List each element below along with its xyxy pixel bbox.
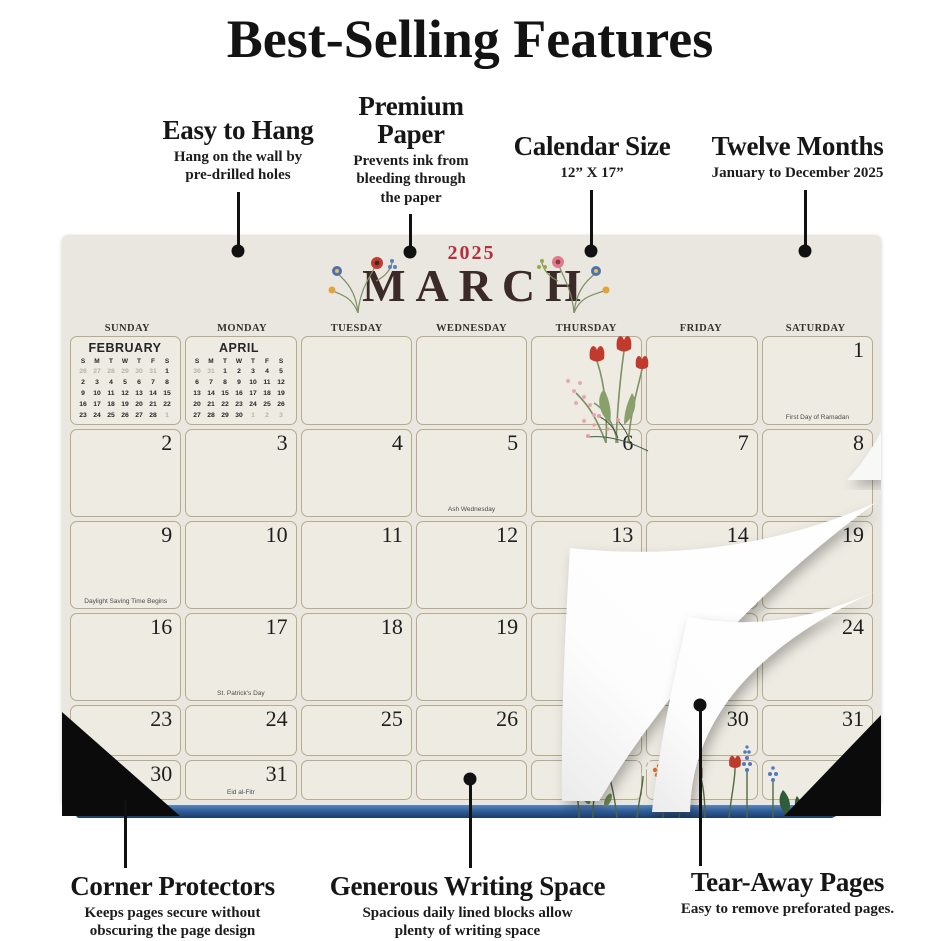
day-number: 13 [611, 522, 633, 548]
mini-day: 27 [90, 366, 104, 377]
day-cell-r2c7: 8 [762, 429, 873, 517]
mini-week-row: 13141516171819 [190, 388, 288, 399]
mini-week-row: 6789101112 [190, 377, 288, 388]
day-number: 9 [161, 522, 172, 548]
mini-day: 1 [160, 366, 174, 377]
day-number: 17 [266, 614, 288, 640]
day-number: 25 [381, 706, 403, 732]
callout-subtext: January to December 2025 [680, 164, 915, 182]
mini-day: 13 [190, 388, 204, 399]
mini-dow-letter: T [132, 357, 146, 366]
mini-day: 16 [76, 399, 90, 410]
mini-day: 10 [246, 377, 260, 388]
day-header-tuesday: TUESDAY [299, 323, 414, 334]
day-cell-r2c2: 3 [185, 429, 296, 517]
mini-day: 28 [204, 410, 218, 421]
day-cell-r2c3: 4 [301, 429, 412, 517]
mini-calendar-title: FEBRUARY [76, 341, 174, 355]
holiday-label: Spring Begins [534, 690, 639, 697]
mini-day: 15 [218, 388, 232, 399]
calendar-month: MARCH [62, 259, 881, 312]
mini-day: 19 [118, 399, 132, 410]
day-number: 1 [853, 337, 864, 363]
day-cell-r6c6 [646, 760, 757, 800]
callout-heading: Tear-Away Pages [640, 868, 935, 896]
mini-week-row: 303112345 [190, 366, 288, 377]
day-cell-r2c4: 5Ash Wednesday [416, 429, 527, 517]
leader-line-easy-to-hang [237, 192, 240, 248]
mini-days: 2627282930311234567891011121314151617181… [76, 366, 174, 421]
day-header-friday: FRIDAY [644, 323, 759, 334]
callout-heading: Generous Writing Space [295, 872, 640, 900]
mini-day: 25 [260, 399, 274, 410]
holiday-label: St. Patrick's Day [188, 690, 293, 697]
mini-day: 17 [90, 399, 104, 410]
mini-dow-letter: T [246, 357, 260, 366]
day-cell-r3c1: 9Daylight Saving Time Begins [70, 521, 181, 609]
mini-day: 8 [160, 377, 174, 388]
leader-line-calendar-size [590, 190, 593, 248]
mini-day: 19 [274, 388, 288, 399]
day-cell-r4c2: 17St. Patrick's Day [185, 613, 296, 701]
mini-day: 1 [246, 410, 260, 421]
day-header-saturday: SATURDAY [758, 323, 873, 334]
mini-day: 1 [160, 410, 174, 421]
day-cell-r2c5: 6 [531, 429, 642, 517]
day-number: 4 [392, 430, 403, 456]
mini-day: 5 [118, 377, 132, 388]
mini-day: 8 [218, 377, 232, 388]
mini-dow-letter: S [160, 357, 174, 366]
day-number: 23 [150, 706, 172, 732]
mini-day: 14 [204, 388, 218, 399]
callout-premium-paper: Premium Paper Prevents ink from bleeding… [330, 92, 492, 207]
day-number: 11 [382, 522, 403, 548]
mini-day: 24 [90, 410, 104, 421]
day-header-sunday: SUNDAY [70, 323, 185, 334]
mini-week-row: 2324252627281 [76, 410, 174, 421]
holiday-label: Eid al-Fitr [188, 789, 293, 796]
day-cell-r2c6: 7 [646, 429, 757, 517]
mini-day: 10 [90, 388, 104, 399]
mini-day: 3 [274, 410, 288, 421]
day-number: 31 [266, 761, 288, 787]
feature-graphic: Best-Selling Features Easy to Hang Hang … [0, 0, 940, 940]
mini-day: 3 [90, 377, 104, 388]
callout-calendar-size: Calendar Size 12” X 17” [480, 132, 704, 182]
mini-day: 16 [232, 388, 246, 399]
day-number: 26 [496, 706, 518, 732]
mini-day: 4 [104, 377, 118, 388]
day-cell-r4c4: 19 [416, 613, 527, 701]
holiday-label: Daylight Saving Time Begins [73, 598, 178, 605]
mini-dow-letter: T [104, 357, 118, 366]
leader-dot-easy-to-hang [232, 245, 245, 258]
mini-week-row: 27282930123 [190, 410, 288, 421]
mini-day: 7 [146, 377, 160, 388]
mini-days: 3031123456789101112131415161718192021222… [190, 366, 288, 421]
mini-dow-row: SMTWTFS [76, 357, 174, 366]
mini-day: 6 [132, 377, 146, 388]
day-cell-r6c3 [301, 760, 412, 800]
mini-day: 29 [118, 366, 132, 377]
leader-line-tear-away-pages [699, 704, 702, 866]
day-cell-r3c5: 13 [531, 521, 642, 609]
callout-subtext: Prevents ink from bleeding through the p… [330, 152, 492, 207]
mini-dow-letter: S [274, 357, 288, 366]
day-number: 12 [496, 522, 518, 548]
callout-easy-to-hang: Easy to Hang Hang on the wall by pre-dri… [118, 116, 358, 185]
callout-corner-protectors: Corner Protectors Keeps pages secure wit… [30, 872, 315, 941]
page-title: Best-Selling Features [0, 8, 940, 70]
callout-generous-writing-space: Generous Writing Space Spacious daily li… [295, 872, 640, 941]
leader-line-twelve-months [804, 190, 807, 248]
mini-day: 22 [160, 399, 174, 410]
day-number: 24 [266, 706, 288, 732]
mini-week-row: 2627282930311 [76, 366, 174, 377]
day-cell-r4c7: 24 [762, 613, 873, 701]
callout-heading: Calendar Size [480, 132, 704, 160]
mini-day: 6 [190, 377, 204, 388]
day-cell-r5c4: 26 [416, 705, 527, 756]
mini-dow-letter: W [118, 357, 132, 366]
mini-day: 13 [132, 388, 146, 399]
mini-dow-letter: M [204, 357, 218, 366]
mini-day: 18 [260, 388, 274, 399]
mini-day: 9 [76, 388, 90, 399]
mini-day: 5 [274, 366, 288, 377]
mini-day: 4 [260, 366, 274, 377]
mini-day: 23 [76, 410, 90, 421]
mini-day: 26 [274, 399, 288, 410]
day-number: 8 [853, 430, 864, 456]
day-number: 5 [507, 430, 518, 456]
callout-subtext: Easy to remove preforated pages. [640, 900, 935, 918]
callout-tear-away-pages: Tear-Away Pages Easy to remove preforate… [640, 868, 935, 918]
mini-dow-letter: F [146, 357, 160, 366]
day-cell-r1c3 [301, 336, 412, 425]
day-cell-r3c3: 11 [301, 521, 412, 609]
day-cell-r2c1: 2 [70, 429, 181, 517]
leader-dot-premium-paper [404, 246, 417, 259]
mini-day: 28 [104, 366, 118, 377]
mini-day: 30 [190, 366, 204, 377]
mini-day: 30 [132, 366, 146, 377]
calendar-pad: 2025 MARCH SUNDAYMONDAYTUESDAYWEDNESDAYT… [62, 235, 881, 818]
holiday-label: Ash Wednesday [419, 506, 524, 513]
day-cell-r1c6 [646, 336, 757, 425]
mini-day: 2 [260, 410, 274, 421]
day-number: 18 [381, 614, 403, 640]
day-cell-r4c6 [646, 613, 757, 701]
callout-heading: Easy to Hang [118, 116, 358, 144]
mini-day: 29 [218, 410, 232, 421]
leader-dot-tear-away-pages [694, 699, 707, 712]
mini-day: 17 [246, 388, 260, 399]
day-header-monday: MONDAY [185, 323, 300, 334]
pad-backing-edge [76, 805, 876, 818]
mini-day: 14 [146, 388, 160, 399]
mini-week-row: 2345678 [76, 377, 174, 388]
callout-subtext: Spacious daily lined blocks allow plenty… [295, 904, 640, 941]
mini-day: 1 [218, 366, 232, 377]
mini-day: 30 [232, 410, 246, 421]
mini-week-row: 9101112131415 [76, 388, 174, 399]
day-number: 14 [727, 522, 749, 548]
day-cell-r3c6: 14 [646, 521, 757, 609]
day-cell-r5c5 [531, 705, 642, 756]
mini-calendar-february: FEBRUARY SMTWTFS 26272829303112345678910… [76, 341, 174, 421]
mini-calendar-title: APRIL [190, 341, 288, 355]
day-number: 19 [842, 522, 864, 548]
mini-dow-letter: W [232, 357, 246, 366]
day-header-thursday: THURSDAY [529, 323, 644, 334]
mini-dow-letter: T [218, 357, 232, 366]
mini-day: 20 [190, 399, 204, 410]
callout-subtext: Hang on the wall by pre-drilled holes [118, 148, 358, 185]
day-cell-r5c6: 30 [646, 705, 757, 756]
day-number: 7 [738, 430, 749, 456]
mini-dow-letter: M [90, 357, 104, 366]
mini-day: 12 [118, 388, 132, 399]
mini-day: 15 [160, 388, 174, 399]
day-cell-r4c3: 18 [301, 613, 412, 701]
mini-day: 24 [246, 399, 260, 410]
day-cell-r6c5 [531, 760, 642, 800]
day-number: 30 [150, 761, 172, 787]
mini-day: 22 [218, 399, 232, 410]
day-cell-r1c4 [416, 336, 527, 425]
mini-day: 9 [232, 377, 246, 388]
mini-day: 21 [146, 399, 160, 410]
day-number: 2 [161, 430, 172, 456]
mini-day: 11 [104, 388, 118, 399]
leader-dot-calendar-size [585, 245, 598, 258]
mini-dow-letter: F [260, 357, 274, 366]
mini-day: 28 [146, 410, 160, 421]
day-cell-r5c2: 24 [185, 705, 296, 756]
day-number: 30 [727, 706, 749, 732]
callout-subtext: 12” X 17” [480, 164, 704, 182]
mini-day: 21 [204, 399, 218, 410]
mini-calendar-april: APRIL SMTWTFS 30311234567891011121314151… [190, 341, 288, 421]
mini-day: 2 [76, 377, 90, 388]
mini-day: 31 [204, 366, 218, 377]
mini-day: 2 [232, 366, 246, 377]
day-number: 16 [150, 614, 172, 640]
mini-day: 31 [146, 366, 160, 377]
day-cell-r4c5: 20Spring Begins [531, 613, 642, 701]
mini-day: 12 [274, 377, 288, 388]
mini-day: 26 [118, 410, 132, 421]
mini-dow-letter: S [76, 357, 90, 366]
mini-day: 20 [132, 399, 146, 410]
leader-line-generous-writing-space [469, 779, 472, 868]
day-cell-r5c3: 25 [301, 705, 412, 756]
leader-dot-twelve-months [799, 245, 812, 258]
day-number: 24 [842, 614, 864, 640]
mini-dow-letter: S [190, 357, 204, 366]
leader-line-premium-paper [409, 214, 412, 249]
leader-dot-generous-writing-space [464, 773, 477, 786]
day-number: 19 [496, 614, 518, 640]
callout-twelve-months: Twelve Months January to December 2025 [680, 132, 915, 182]
mini-week-row: 16171819202122 [76, 399, 174, 410]
holiday-label: First Day of Ramadan [765, 414, 870, 421]
mini-day: 25 [104, 410, 118, 421]
mini-day: 27 [190, 410, 204, 421]
callout-heading: Twelve Months [680, 132, 915, 160]
mini-day: 11 [260, 377, 274, 388]
mini-day: 26 [76, 366, 90, 377]
day-cell-r3c4: 12 [416, 521, 527, 609]
mini-day: 18 [104, 399, 118, 410]
day-number: 20 [611, 614, 633, 640]
day-cell-r6c2: 31Eid al-Fitr [185, 760, 296, 800]
mini-day: 3 [246, 366, 260, 377]
day-number: 3 [277, 430, 288, 456]
mini-day: 23 [232, 399, 246, 410]
leader-line-corner-protectors [124, 800, 127, 868]
callout-subtext: Keeps pages secure without obscuring the… [30, 904, 315, 941]
callout-heading: Corner Protectors [30, 872, 315, 900]
day-number: 10 [266, 522, 288, 548]
mini-dow-row: SMTWTFS [190, 357, 288, 366]
day-cell-r1c7: 1First Day of Ramadan [762, 336, 873, 425]
day-number: 6 [622, 430, 633, 456]
day-cell-r3c2: 10 [185, 521, 296, 609]
day-of-week-header-row: SUNDAYMONDAYTUESDAYWEDNESDAYTHURSDAYFRID… [70, 323, 873, 334]
day-header-wednesday: WEDNESDAY [414, 323, 529, 334]
mini-day: 27 [132, 410, 146, 421]
callout-heading: Premium Paper [330, 92, 492, 148]
mini-week-row: 20212223242526 [190, 399, 288, 410]
day-cell-r1c5 [531, 336, 642, 425]
day-cell-r3c7: 19 [762, 521, 873, 609]
day-cell-r4c1: 16 [70, 613, 181, 701]
mini-day: 7 [204, 377, 218, 388]
day-number: 31 [842, 706, 864, 732]
